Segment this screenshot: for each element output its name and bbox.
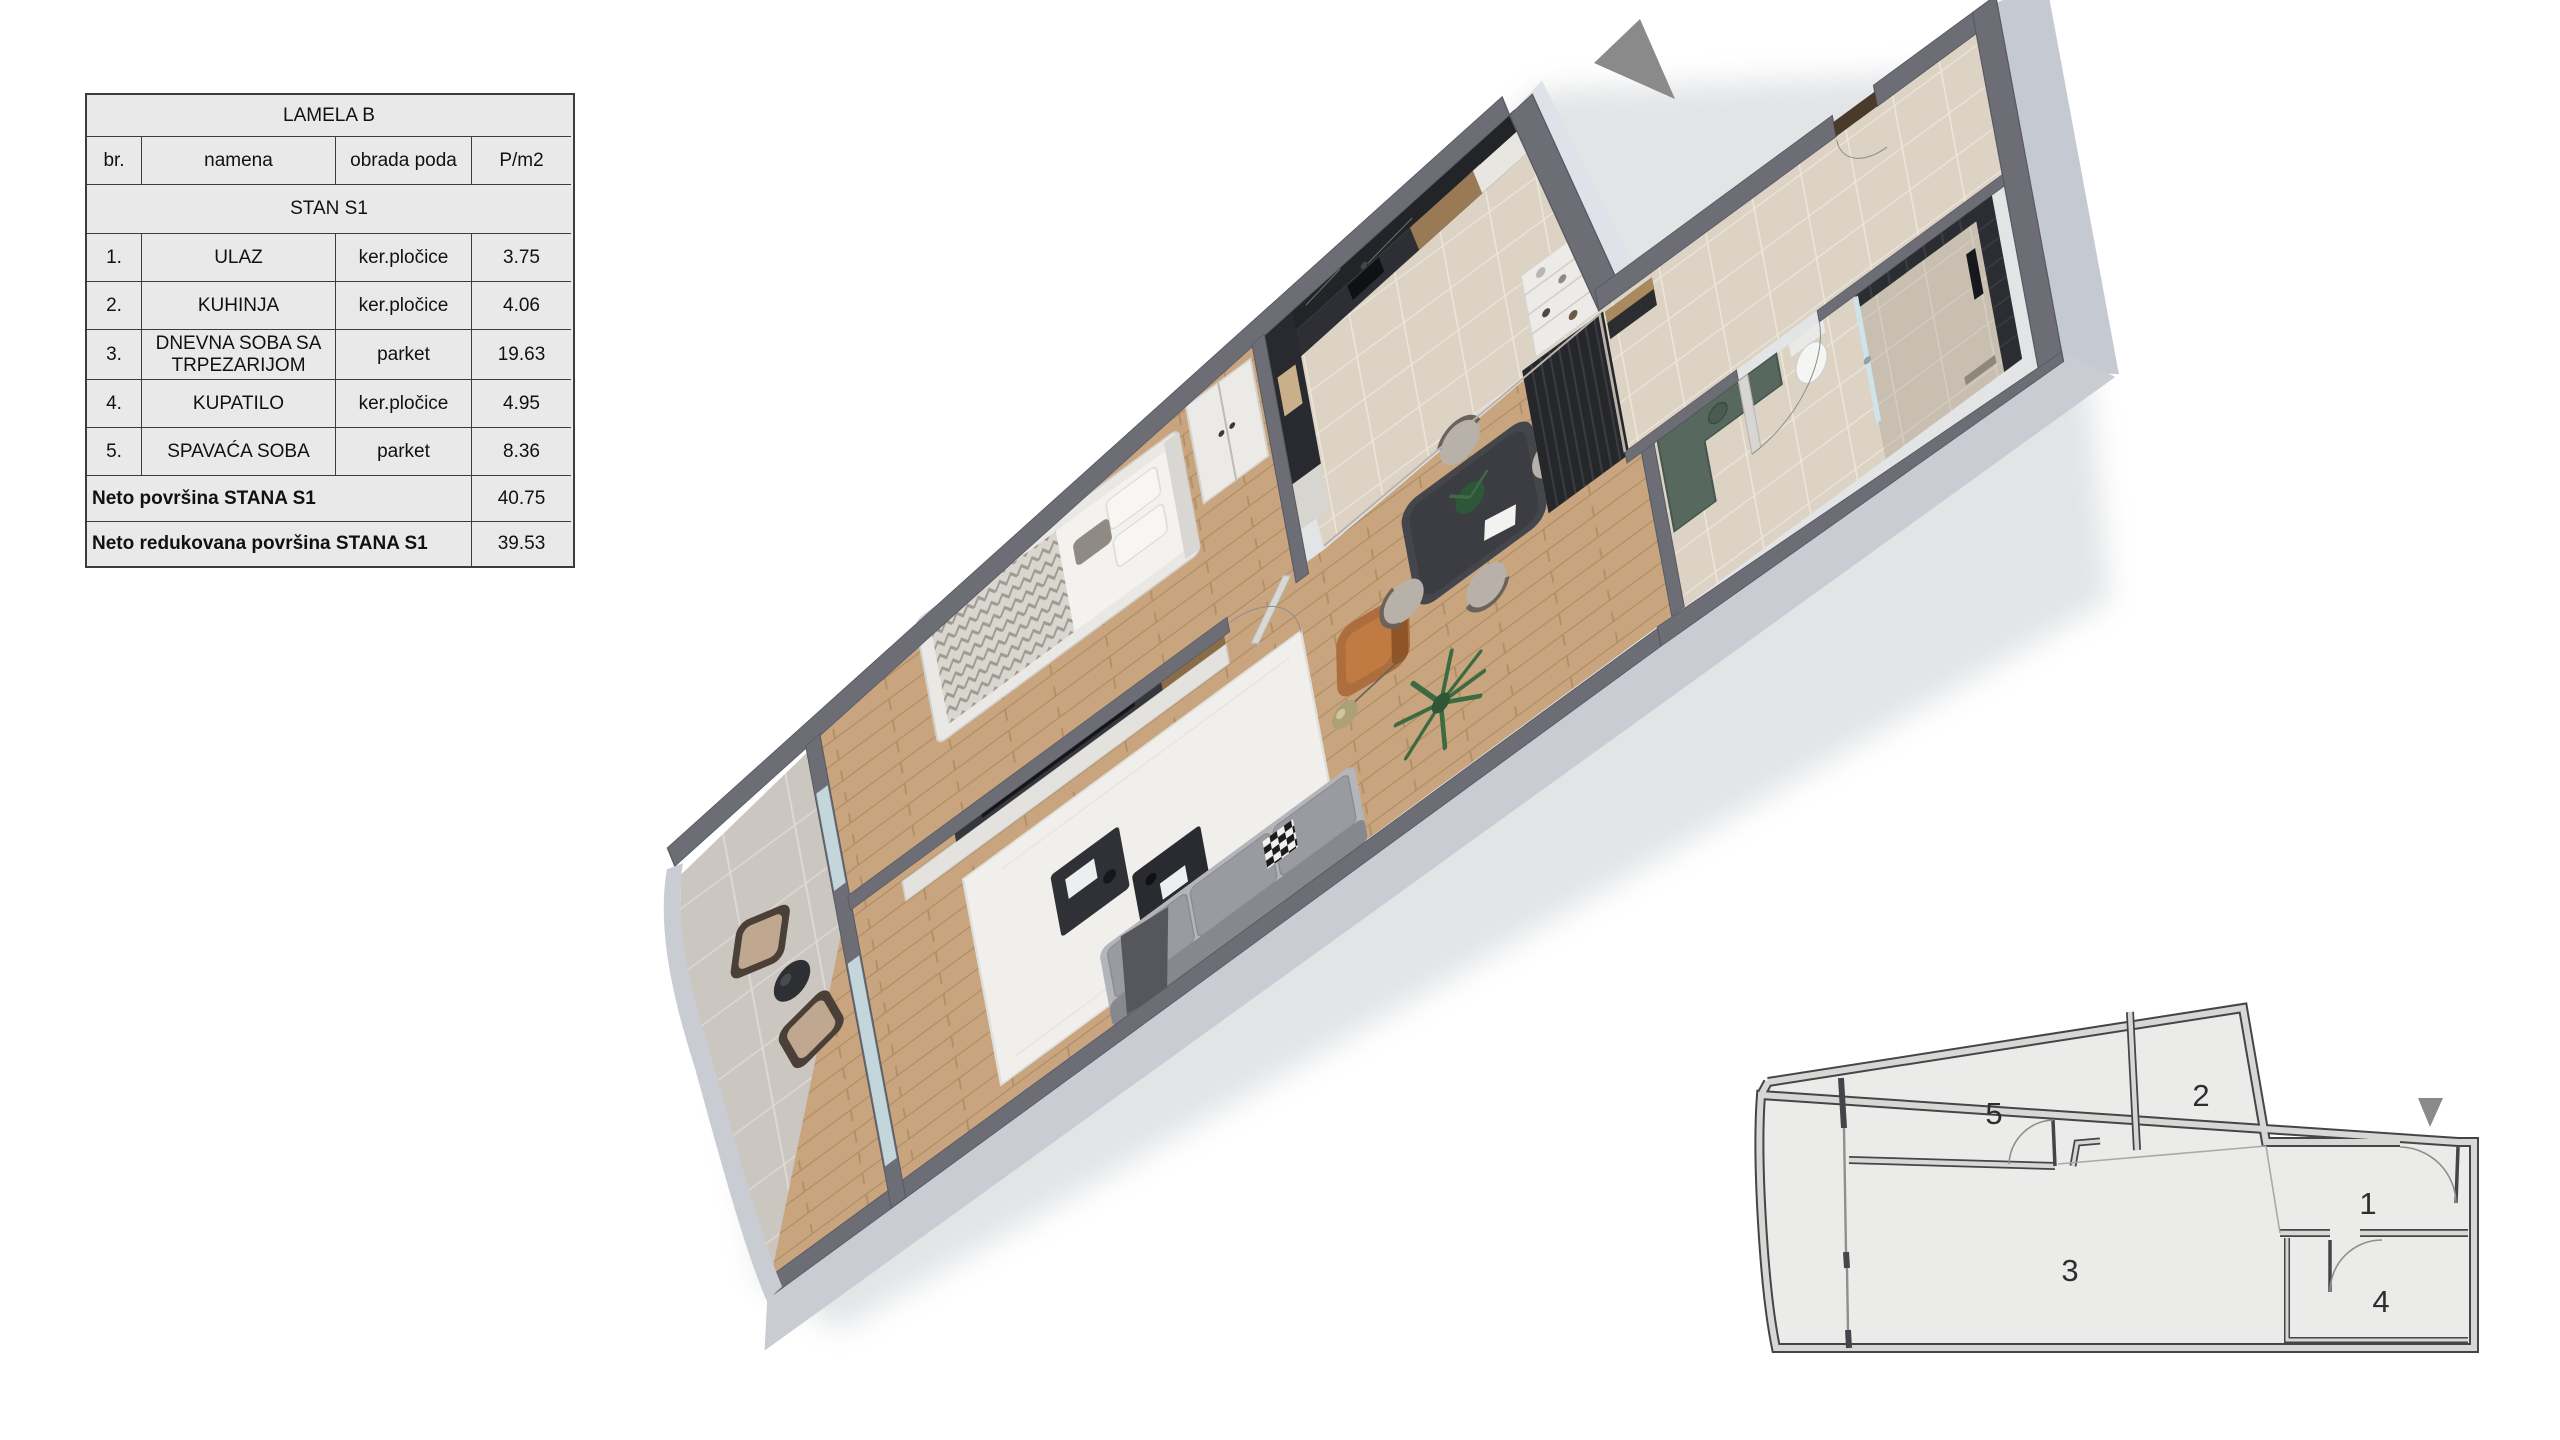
row-num: 1.: [87, 234, 142, 282]
area-table: LAMELA B br. namena obrada poda P/m2 STA…: [85, 93, 575, 568]
col-header-namena: namena: [142, 137, 336, 185]
table-section-stan-s1: STAN S1: [87, 185, 571, 234]
mini-plan-room-label-5: 5: [1985, 1096, 2002, 1131]
col-header-obrada-poda: obrada poda: [336, 137, 472, 185]
row-name: KUPATILO: [142, 380, 336, 428]
row-area: 4.95: [472, 380, 571, 428]
entrance-triangle-icon: [2418, 1098, 2443, 1127]
row-floor: ker.pločice: [336, 380, 472, 428]
total-net-area-label: Neto površina STANA S1: [87, 476, 472, 522]
mini-plan-2d: 1 2 3 4 5: [1758, 1008, 2474, 1348]
col-header-br: br.: [87, 137, 142, 185]
row-name: KUHINJA: [142, 282, 336, 330]
row-num: 5.: [87, 428, 142, 476]
row-area: 3.75: [472, 234, 571, 282]
row-area: 8.36: [472, 428, 571, 476]
floorplan-sheet: 1 2 3 4 5 LAMELA B br. namena obrada pod…: [0, 0, 2560, 1440]
row-floor: parket: [336, 330, 472, 380]
mini-plan-room-label-2: 2: [2192, 1078, 2209, 1113]
mini-plan-room-label-3: 3: [2061, 1253, 2078, 1288]
row-floor: ker.pločice: [336, 234, 472, 282]
row-num: 2.: [87, 282, 142, 330]
total-net-area-value: 40.75: [472, 476, 571, 522]
row-floor: ker.pločice: [336, 282, 472, 330]
col-header-pm2: P/m2: [472, 137, 571, 185]
mini-plan-floor: [1758, 1008, 2474, 1348]
total-reduced-area-value: 39.53: [472, 522, 571, 566]
mini-plan-room-label-1: 1: [2359, 1186, 2376, 1221]
row-name: ULAZ: [142, 234, 336, 282]
row-area: 19.63: [472, 330, 571, 380]
row-floor: parket: [336, 428, 472, 476]
row-area: 4.06: [472, 282, 571, 330]
row-num: 3.: [87, 330, 142, 380]
total-reduced-area-label: Neto redukovana površina STANA S1: [87, 522, 472, 566]
mini-plan-room-label-4: 4: [2372, 1284, 2389, 1319]
table-title: LAMELA B: [87, 95, 571, 137]
row-name: SPAVAĆA SOBA: [142, 428, 336, 476]
row-num: 4.: [87, 380, 142, 428]
row-name: DNEVNA SOBA SA TRPEZARIJOM: [142, 330, 336, 380]
